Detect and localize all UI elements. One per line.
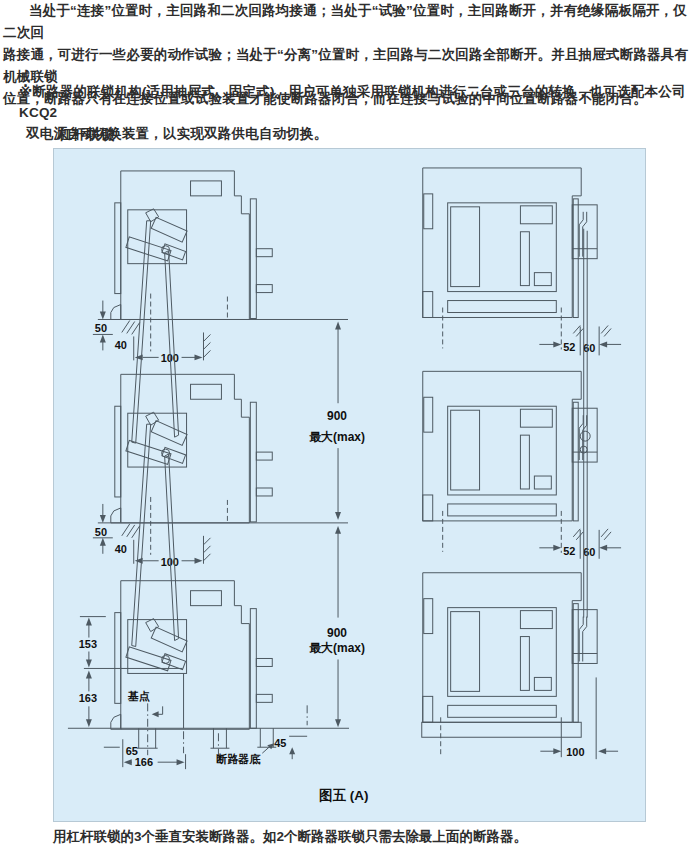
section-label-lever-interlock: 杠杆联锁: [58, 126, 114, 144]
dim-163-label: 163: [79, 692, 97, 704]
interlock-rod-front: [580, 229, 590, 618]
dim-900-upper-value: 900: [327, 409, 347, 423]
figure-diagram: 50 40 100 52 60: [54, 149, 645, 821]
dim-900-upper-max: 最大(max): [309, 430, 365, 444]
breaker-unit-top: [93, 168, 621, 364]
breaker-unit-bottom-front: [423, 573, 597, 723]
dim-900-upper: 900 最大(max): [309, 321, 365, 519]
dim-900-lower: 900 最大(max): [309, 526, 365, 727]
interlock-line-1: ※断路器的联锁机构(适用抽屉式、固定式)。用户可单独采用联锁机构进行二台或三台的…: [19, 81, 697, 123]
dim-100-bottom-label: 100: [566, 746, 584, 758]
dim-153-label: 153: [79, 638, 97, 650]
dim-900-lower-value: 900: [327, 626, 347, 640]
interlock-line-2: 双电源自动切换装置，以实现双路供电自动切换。: [26, 123, 697, 144]
bottom-unit-annotations: 153 163 基点 65 166 45: [68, 617, 349, 770]
dim-166-label: 166: [135, 756, 153, 768]
figure-panel: 50 40 100 52 60: [53, 148, 646, 822]
base-point-label: 基点: [127, 690, 150, 702]
interlock-paragraph: ※断路器的联锁机构(适用抽屉式、固定式)。用户可单独采用联锁机构进行二台或三台的…: [19, 81, 697, 144]
intro-line-1: 当处于“连接”位置时，主回路和二次回路均接通；当处于“试验”位置时，主回路断开，…: [3, 0, 697, 44]
dim-45-label: 45: [274, 737, 286, 749]
dim-900-lower-max: 最大(max): [309, 641, 365, 655]
breaker-bottom-label: 断路器底: [216, 753, 261, 765]
footer-note: 用杠杆联锁的3个垂直安装断路器。如2个断路器联锁只需去除最上面的断路器。: [53, 828, 527, 845]
breaker-unit-middle: [93, 371, 621, 567]
figure-caption: 图五 (A): [319, 788, 368, 803]
